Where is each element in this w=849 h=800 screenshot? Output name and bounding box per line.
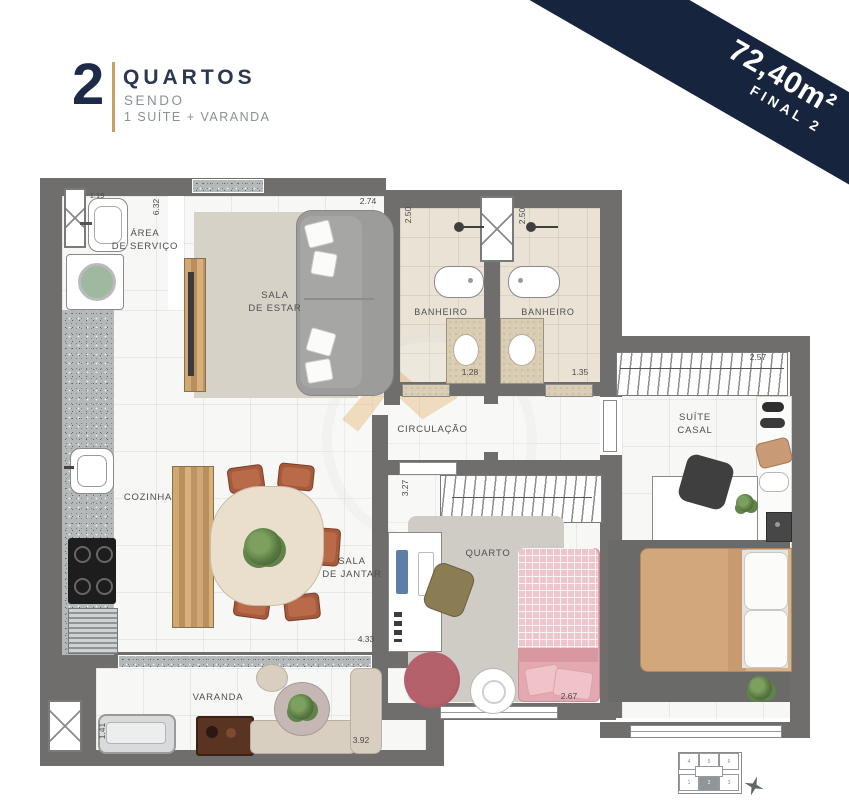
grill-burner-icon <box>206 726 218 738</box>
dresser-knob-icon <box>775 522 780 527</box>
burner-icon <box>96 546 113 563</box>
kitchen-island <box>172 466 214 628</box>
wall-left <box>40 178 62 675</box>
entry-threshold <box>192 179 264 193</box>
desk-items <box>394 612 402 642</box>
tub-drain-icon <box>518 278 523 283</box>
room-label-servico: ÁREA DE SERVIÇO <box>95 228 195 254</box>
grill-burner-icon <box>226 728 236 738</box>
closet-dim-line <box>620 368 784 369</box>
desk-plant <box>736 494 754 512</box>
suite-dresser <box>766 512 792 542</box>
wall-suite-top <box>600 336 810 352</box>
table-plant <box>244 528 282 566</box>
laptop-icon <box>396 550 408 594</box>
single-bed-band <box>518 648 598 662</box>
room-label-sala-estar: SALA DE ESTAR <box>215 290 335 316</box>
door-jamb-bottom <box>484 452 498 460</box>
dim-quarto-width: 2.67 <box>549 691 589 701</box>
bathtub-1 <box>434 266 484 298</box>
header-divider <box>112 62 115 132</box>
room-label-circulacao: CIRCULAÇÃO <box>380 424 485 437</box>
dim-servico-width: 1.19 <box>82 191 112 200</box>
bedroom-count: 2 <box>72 56 104 114</box>
room-label-cozinha: COZINHA <box>118 492 178 505</box>
wardrobe-dim-line <box>452 497 592 498</box>
kitchen-sink-basin <box>77 455 107 487</box>
key-plan: 4 5 6 1 2 3 <box>678 752 742 794</box>
laundry-faucet <box>80 222 92 225</box>
sink-1 <box>453 334 479 366</box>
suite-window <box>630 725 782 738</box>
dim-banheiro1-depth: 2.50 <box>403 195 413 235</box>
tv-icon <box>188 272 194 376</box>
dim-jantar-width: 4.33 <box>346 634 386 644</box>
sofa-pillow <box>310 250 338 278</box>
bathroom2-threshold <box>545 384 593 397</box>
shower-arm-icon <box>462 226 484 228</box>
dim-banheiro2-width: 1.35 <box>560 367 600 377</box>
page-subtitle-2: 1 SUÍTE + VARANDA <box>124 110 270 124</box>
charcoal-grill <box>196 716 254 756</box>
burner-icon <box>74 578 91 595</box>
dim-varanda-width: 3.92 <box>341 735 381 745</box>
page-title: QUARTOS <box>123 66 256 90</box>
shelf-towels <box>760 418 785 428</box>
single-bed-quilt <box>518 548 598 648</box>
door-jamb-top <box>484 396 498 404</box>
floorplan-page: 2 QUARTOS SENDO 1 SUÍTE + VARANDA 72,40m… <box>0 0 849 800</box>
dim-suite-width: 2.57 <box>738 352 778 362</box>
shelf-pouf <box>759 472 789 492</box>
balcony-counter <box>118 655 372 668</box>
balcony-plant <box>288 694 314 720</box>
room-label-quarto: QUARTO <box>450 548 526 561</box>
room-label-banheiro1: BANHEIRO <box>398 306 484 318</box>
shower-arm-icon <box>534 226 558 228</box>
tub-drain-icon <box>468 278 473 283</box>
kitchen-faucet <box>64 466 74 469</box>
duct-balcony <box>48 700 82 752</box>
double-bed-pillow <box>744 552 788 610</box>
room-label-suite: SUÍTE CASAL <box>650 412 740 438</box>
side-table-ring <box>482 680 506 704</box>
dim-banheiro1-width: 1.28 <box>450 367 490 377</box>
bathtub-2 <box>508 266 560 298</box>
keyplan-core <box>695 766 723 777</box>
duct-baths <box>480 196 514 262</box>
dim-varanda-depth: 1.41 <box>97 711 107 751</box>
washing-machine-drum <box>78 263 116 301</box>
dim-quarto-depth: 3.27 <box>400 468 410 508</box>
wall-right <box>790 336 810 738</box>
room-label-jantar: SALA DE JANTAR <box>310 556 394 582</box>
shelf-towels <box>762 402 784 412</box>
burner-icon <box>74 546 91 563</box>
compass-icon <box>741 773 766 798</box>
dim-banheiro2-depth: 2.50 <box>517 196 527 236</box>
suite-plant <box>748 676 772 700</box>
pouf <box>404 652 460 708</box>
sofa-pillow <box>304 358 333 384</box>
dim-sala-width: 2.74 <box>348 196 388 206</box>
bbq-cart-top <box>106 722 166 744</box>
room-label-banheiro2: BANHEIRO <box>500 306 596 318</box>
oven <box>68 608 118 654</box>
room-label-varanda: VARANDA <box>178 692 258 705</box>
dim-servico-depth: 6.32 <box>151 187 161 227</box>
double-bed-pillow <box>744 610 788 668</box>
sink-2 <box>508 334 536 366</box>
burner-icon <box>96 578 113 595</box>
page-subtitle: SENDO <box>124 93 185 108</box>
bathroom1-threshold <box>402 384 450 397</box>
suite-door <box>603 400 617 452</box>
